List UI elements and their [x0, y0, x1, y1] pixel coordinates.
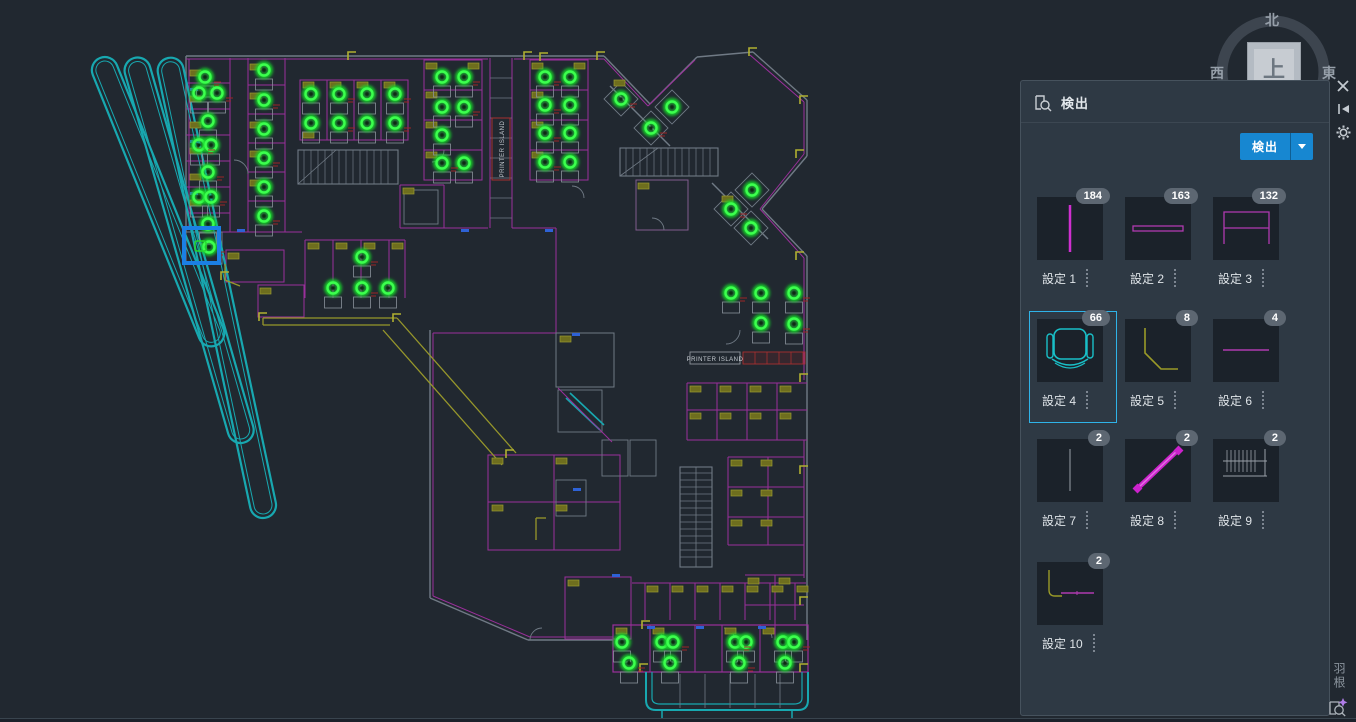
setting-label: 設定 3 — [1218, 270, 1252, 287]
count-badge: 132 — [1252, 188, 1286, 204]
printer-island-label-v: PRINTER ISLAND — [500, 121, 506, 178]
panel-title: 検出 — [1061, 93, 1089, 112]
count-badge: 2 — [1176, 430, 1198, 446]
setting-thumbnail[interactable]: 66 — [1037, 319, 1103, 382]
detect-button[interactable]: 検出 — [1240, 133, 1290, 160]
item-menu-icon[interactable] — [1084, 267, 1090, 289]
setting-label: 設定 1 — [1042, 270, 1076, 287]
setting-item-2[interactable]: 163設定 2 — [1117, 189, 1205, 301]
setting-label: 設定 9 — [1218, 512, 1252, 529]
compass-north-label: 北 — [1265, 10, 1279, 30]
count-badge: 2 — [1088, 430, 1110, 446]
setting-item-4[interactable]: 66設定 4 — [1029, 311, 1117, 423]
panel-header: 検出 — [1021, 81, 1329, 123]
setting-thumbnail[interactable]: 2 — [1037, 439, 1103, 502]
setting-thumbnail[interactable]: 4 — [1213, 319, 1279, 382]
setting-label: 設定 5 — [1130, 392, 1164, 409]
setting-label: 設定 4 — [1042, 392, 1076, 409]
setting-thumbnail[interactable]: 184 — [1037, 197, 1103, 260]
side-vertical-label: 羽根 — [1328, 662, 1348, 690]
setting-thumbnail[interactable]: 2 — [1037, 562, 1103, 625]
setting-item-3[interactable]: 132設定 3 — [1205, 189, 1293, 301]
window-bottom-edge — [0, 718, 1356, 722]
count-badge: 163 — [1164, 188, 1198, 204]
item-menu-icon[interactable] — [1260, 267, 1266, 289]
setting-item-7[interactable]: 2設定 7 — [1029, 431, 1117, 543]
setting-item-1[interactable]: 184設定 1 — [1029, 189, 1117, 301]
setting-label: 設定 8 — [1130, 512, 1164, 529]
app-window: PRINTER ISLANDPRINTER ISLAND 北 西 東 上 検出 … — [0, 0, 1356, 722]
item-menu-icon[interactable] — [1172, 509, 1178, 531]
setting-thumbnail[interactable]: 132 — [1213, 197, 1279, 260]
setting-label: 設定 7 — [1042, 512, 1076, 529]
detect-dropdown-button[interactable] — [1290, 133, 1313, 160]
setting-thumbnail[interactable]: 2 — [1125, 439, 1191, 502]
count-badge: 8 — [1176, 310, 1198, 326]
setting-item-9[interactable]: 2設定 9 — [1205, 431, 1293, 543]
detection-panel: 検出 検出 184設定 1163設定 2132設定 366設定 48設定 54設… — [1020, 80, 1330, 716]
item-menu-icon[interactable] — [1172, 389, 1178, 411]
item-menu-icon[interactable] — [1172, 267, 1178, 289]
setting-item-5[interactable]: 8設定 5 — [1117, 311, 1205, 423]
setting-label: 設定 6 — [1218, 392, 1252, 409]
setting-thumbnail[interactable]: 8 — [1125, 319, 1191, 382]
panel-window-controls — [1330, 78, 1356, 140]
gear-icon[interactable] — [1335, 124, 1351, 140]
detect-search-icon — [1033, 94, 1052, 112]
chevron-down-icon — [1298, 144, 1306, 149]
item-menu-icon[interactable] — [1091, 632, 1097, 654]
item-menu-icon[interactable] — [1260, 389, 1266, 411]
item-menu-icon[interactable] — [1084, 509, 1090, 531]
close-icon[interactable] — [1335, 78, 1351, 94]
item-menu-icon[interactable] — [1084, 389, 1090, 411]
setting-label: 設定 2 — [1130, 270, 1164, 287]
count-badge: 2 — [1088, 553, 1110, 569]
count-badge: 2 — [1264, 430, 1286, 446]
setting-thumbnail[interactable]: 2 — [1213, 439, 1279, 502]
setting-item-10[interactable]: 2設定 10 — [1029, 554, 1117, 666]
item-menu-icon[interactable] — [1260, 509, 1266, 531]
detect-button-group: 検出 — [1240, 133, 1313, 160]
setting-thumbnail[interactable]: 163 — [1125, 197, 1191, 260]
setting-item-8[interactable]: 2設定 8 — [1117, 431, 1205, 543]
count-badge: 184 — [1076, 188, 1110, 204]
setting-label: 設定 10 — [1042, 635, 1083, 652]
setting-item-6[interactable]: 4設定 6 — [1205, 311, 1293, 423]
count-badge: 4 — [1264, 310, 1286, 326]
printer-island-label-h: PRINTER ISLAND — [687, 357, 744, 363]
count-badge: 66 — [1082, 310, 1110, 326]
collapse-panel-icon[interactable] — [1335, 101, 1351, 117]
